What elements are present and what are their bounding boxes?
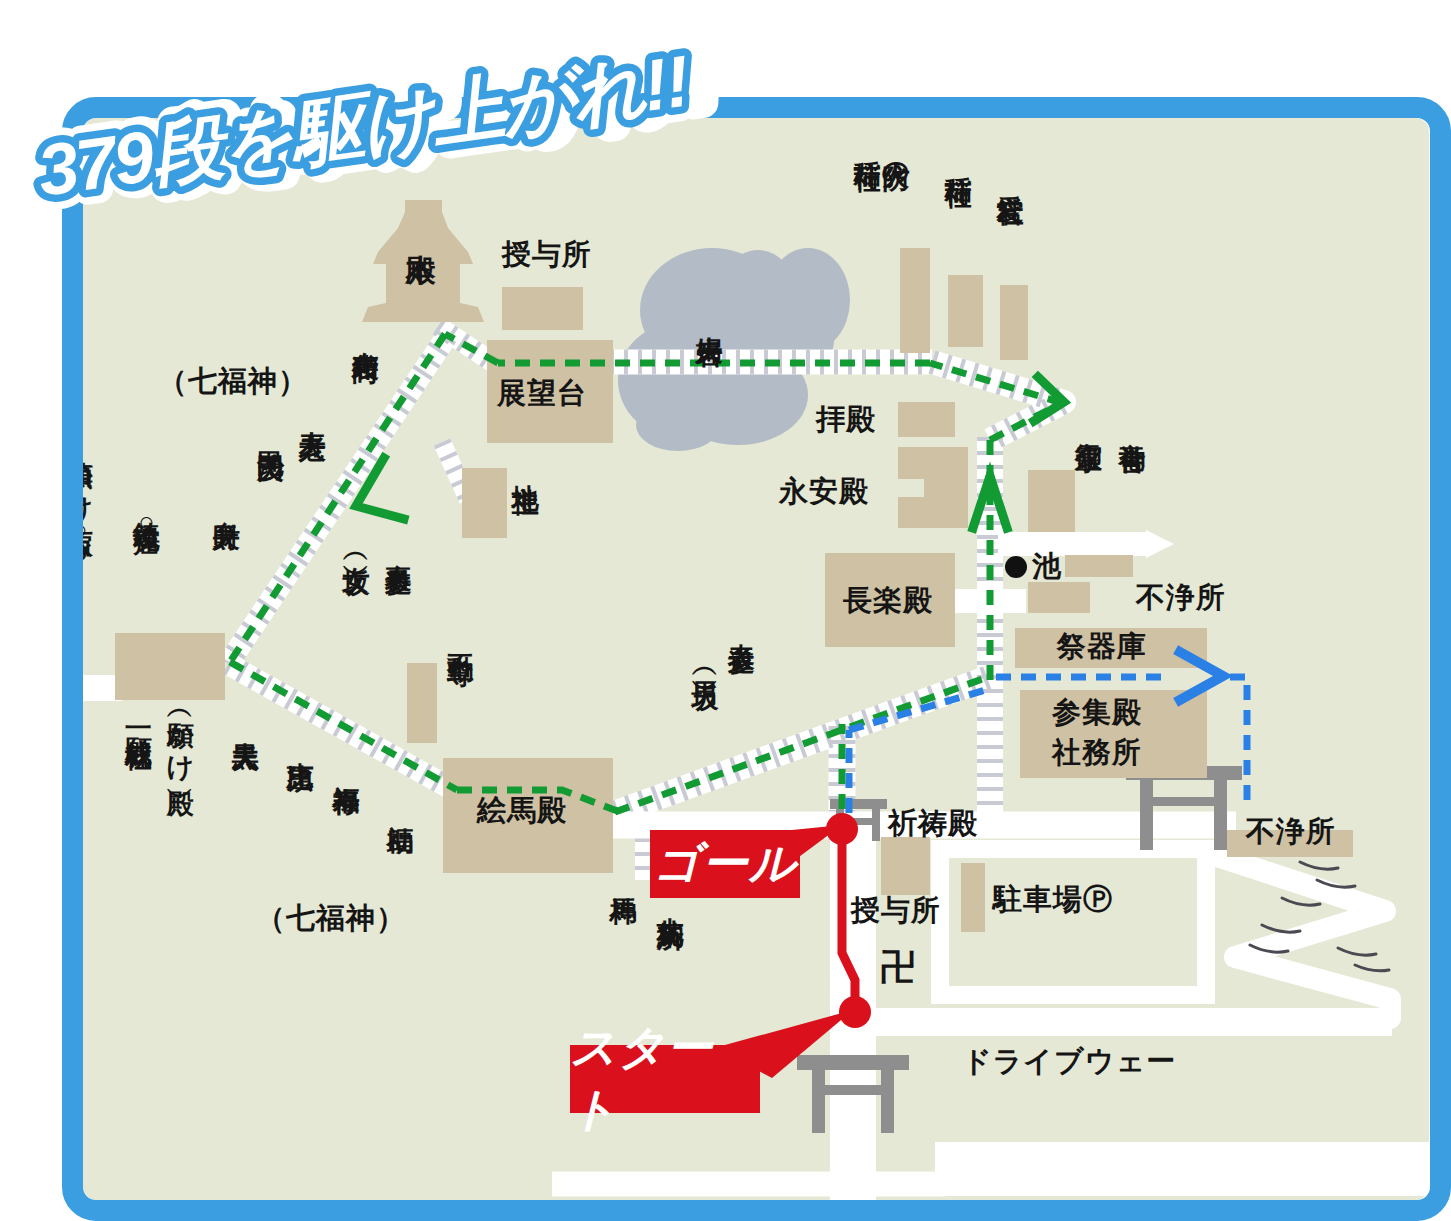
- label-hibuse-inari-line2: 稲荷社: [853, 140, 881, 177]
- label-ryujinsha: 竜神舎: [1118, 421, 1146, 427]
- label-shinme: 神馬: [609, 875, 637, 879]
- label-jurojin: 寿老人: [298, 411, 326, 417]
- label-parking: 駐車場Ⓟ: [993, 884, 1113, 914]
- label-shamusho: 社務所: [1052, 737, 1142, 767]
- label-uramairi: 裏参道: [384, 543, 412, 549]
- shrine-course-map: （七福神） 授与所 展望台 拝殿 永安殿 長楽殿 池 不浄所 祭器庫 参集殿 社…: [0, 0, 1451, 1221]
- label-daikokuten: 大黒天: [231, 721, 259, 727]
- label-inarisha: 稲荷社: [944, 156, 972, 162]
- label-eianden: 永安殿: [779, 476, 869, 506]
- label-benzaiten: 弁財天: [212, 500, 240, 506]
- green-arrow-southwest-icon: [356, 458, 404, 519]
- label-omotesando: 表参道: [727, 622, 755, 628]
- label-ichigan-joju: 一願成就社: [124, 714, 152, 724]
- label-shichifukujin-bottom: （七福神）: [256, 903, 406, 933]
- label-bishamonten: 毘沙門天: [256, 430, 284, 438]
- label-kitoden: 祈祷殿: [888, 808, 978, 838]
- label-sanshuden: 参集殿: [1052, 697, 1142, 727]
- start-dot: [839, 996, 871, 1028]
- label-tenbodai: 展望台: [497, 378, 587, 408]
- label-ike: 池: [1032, 551, 1062, 581]
- label-gankakeden: （願かけ殿）: [166, 700, 194, 774]
- route-green: [230, 334, 1062, 834]
- route-green-arrows: [356, 377, 1064, 528]
- label-fudoson: 不動尊: [446, 632, 474, 638]
- label-atagosha: 愛宕社: [996, 173, 1024, 179]
- label-fujosho-top: 不浄所: [1136, 582, 1226, 612]
- label-meotoiwa: 夫婦岩: [695, 315, 723, 321]
- label-emaden: 絵馬殿: [477, 795, 567, 825]
- label-saikiko: 祭器庫: [1057, 631, 1147, 661]
- start-badge: スタート: [570, 1045, 760, 1113]
- label-driveway: ドライブウェー: [962, 1046, 1176, 1076]
- manji-icon: 卍: [880, 948, 917, 986]
- label-chinkonkutsu: 鎮魂窟○: [132, 501, 160, 539]
- label-honden: 本殿: [405, 230, 437, 234]
- label-ebisu: 恵比須: [286, 741, 314, 747]
- label-hotei: 布袋和尚: [351, 330, 379, 338]
- label-fukusuke: 福助: [386, 804, 414, 808]
- label-hibuse-inari: 火防の 稲荷社: [853, 140, 910, 177]
- label-juyosho-bottom: 授与所: [851, 895, 941, 925]
- label-fukurokuju: 福禄寿: [332, 764, 360, 770]
- blue-arrow-east-icon: [1180, 652, 1223, 700]
- label-chorakuden: 長楽殿: [843, 585, 933, 615]
- label-fujosho-right: 不浄所: [1246, 816, 1336, 846]
- label-chingan-ishizuka: 鎮願かけ石塚○: [65, 441, 93, 547]
- label-hibuse-inari-line1: 火防の: [881, 140, 909, 177]
- label-shichifukujin-top: （七福神）: [158, 366, 308, 396]
- label-juyosho-top: 授与所: [502, 239, 592, 269]
- label-goreisui: 御霊水: [1074, 421, 1102, 427]
- label-jishusha: 地主社: [511, 463, 539, 469]
- label-otokozaka: （男坂）: [691, 658, 719, 666]
- label-onnazaka: （女坂）: [342, 543, 370, 551]
- goal-badge: ゴール: [650, 830, 800, 898]
- label-haiden: 拝殿: [816, 404, 876, 434]
